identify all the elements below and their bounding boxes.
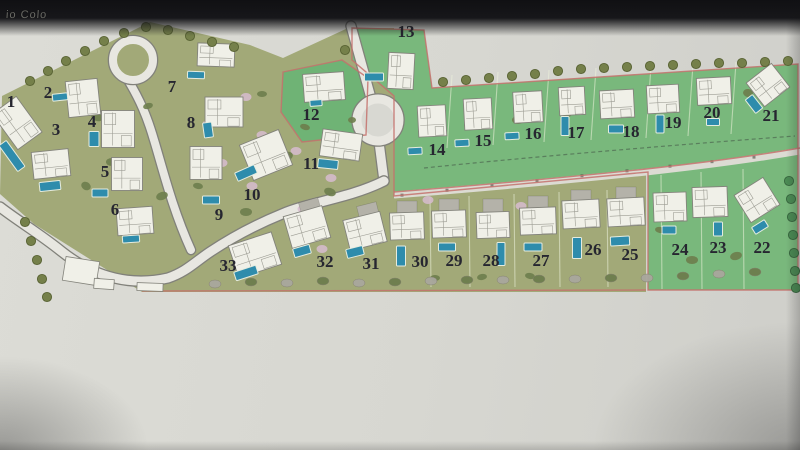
lot-number: 14	[429, 140, 447, 159]
tree-icon	[61, 56, 70, 65]
house-footprint	[558, 86, 585, 115]
swimming-pool	[439, 243, 456, 251]
swimming-pool	[187, 71, 204, 79]
house-footprint	[102, 111, 135, 148]
bush	[317, 277, 329, 285]
swimming-pool	[662, 226, 676, 234]
tree-icon	[789, 248, 798, 257]
rock	[497, 276, 509, 284]
tree-icon	[786, 194, 795, 203]
lot-4: 4	[88, 111, 135, 148]
lot-number: 21	[763, 106, 780, 125]
tree-icon	[229, 42, 238, 51]
house-footprint	[387, 52, 415, 89]
house-footprint	[696, 77, 731, 106]
road	[379, 142, 384, 181]
bush	[749, 268, 761, 276]
tree-icon	[163, 25, 172, 34]
tree-icon	[185, 31, 194, 40]
swimming-pool	[203, 122, 214, 138]
house-footprint	[116, 206, 154, 235]
lot-number: 31	[363, 254, 380, 273]
tree-icon	[207, 37, 216, 46]
site-plan-map: 1234567891011121314151617181920212223242…	[0, 0, 800, 450]
swimming-pool	[455, 139, 469, 147]
lot-number: 16	[525, 124, 542, 143]
bush	[348, 117, 356, 123]
lot-number: 4	[88, 112, 97, 131]
bush	[677, 272, 689, 280]
tree-icon	[42, 292, 51, 301]
bush	[257, 91, 267, 97]
house-outline	[463, 98, 493, 130]
tree-icon	[26, 236, 35, 245]
site-plan-photo: 1234567891011121314151617181920212223242…	[0, 0, 800, 450]
tree-icon	[99, 36, 108, 45]
lot-number: 27	[533, 251, 551, 270]
tree-icon	[37, 274, 46, 283]
house-outline	[692, 186, 728, 217]
rock	[209, 280, 221, 288]
turning-loop	[113, 40, 153, 80]
swimming-pool	[573, 238, 582, 259]
house-footprint	[432, 210, 467, 238]
house-outline	[513, 91, 544, 123]
swimming-pool	[397, 246, 406, 266]
tree-icon	[553, 66, 562, 75]
swimming-pool	[656, 115, 664, 133]
swimming-pool	[89, 132, 99, 147]
bush	[605, 274, 617, 282]
house-footprint	[31, 149, 71, 180]
rock	[281, 279, 293, 287]
house-footprint	[692, 186, 728, 217]
bush	[245, 278, 257, 286]
lot-number: 13	[398, 22, 415, 41]
lot-number: 15	[475, 131, 492, 150]
lot-number: 24	[672, 240, 690, 259]
flower-shrub	[326, 174, 337, 182]
tree-icon	[645, 61, 654, 70]
tree-icon	[787, 212, 796, 221]
lot-number: 9	[215, 205, 224, 224]
lot-number: 1	[7, 92, 16, 111]
swimming-pool	[365, 73, 384, 81]
lot-number: 2	[44, 83, 53, 102]
swimming-pool	[318, 158, 339, 169]
tree-icon	[737, 58, 746, 67]
house-outline	[190, 147, 222, 180]
house-footprint	[513, 91, 544, 123]
tree-icon	[760, 57, 769, 66]
house-footprint	[190, 147, 222, 180]
lot-number: 19	[665, 113, 682, 132]
outbuilding	[137, 283, 163, 292]
tree-icon	[484, 73, 493, 82]
lot-number: 33	[220, 256, 237, 275]
house-footprint	[653, 192, 687, 222]
estate-bottom-boundary	[142, 290, 646, 291]
house-footprint	[417, 105, 447, 137]
tree-icon	[32, 255, 41, 264]
outbuilding	[94, 278, 115, 289]
tree-icon	[691, 59, 700, 68]
house-footprint	[520, 207, 557, 235]
lot-number: 10	[244, 185, 261, 204]
lot-number: 29	[446, 251, 463, 270]
bush	[389, 278, 401, 286]
lot-number: 6	[111, 200, 120, 219]
lot-number: 22	[754, 238, 771, 257]
house-footprint	[476, 211, 510, 238]
house-footprint	[319, 129, 362, 161]
rock	[641, 274, 653, 282]
house-outline	[31, 149, 71, 180]
tree-icon	[530, 69, 539, 78]
house-outline	[303, 72, 346, 103]
driveway	[483, 199, 503, 212]
bush	[240, 208, 252, 216]
rock	[353, 279, 365, 287]
tree-icon	[783, 56, 792, 65]
lot-number: 18	[623, 122, 640, 141]
tree-icon	[791, 283, 800, 292]
swimming-pool	[505, 132, 519, 140]
house-footprint	[112, 158, 143, 191]
lot-number: 26	[585, 240, 602, 259]
house-footprint	[303, 72, 346, 103]
house-footprint	[599, 89, 634, 119]
house-outline	[417, 105, 447, 137]
plan-title-fragment: io Colo	[6, 9, 48, 21]
house-footprint	[607, 197, 645, 227]
tree-icon	[576, 64, 585, 73]
tree-icon	[714, 58, 723, 67]
lot-number: 5	[101, 162, 110, 181]
house-outline	[102, 111, 135, 148]
tree-icon	[80, 46, 89, 55]
house-footprint	[463, 98, 493, 130]
tree-icon	[599, 63, 608, 72]
lot-number: 12	[303, 105, 320, 124]
lot-number: 32	[317, 252, 334, 271]
tree-icon	[438, 77, 447, 86]
rock	[425, 277, 437, 285]
rock	[713, 270, 725, 278]
lot-number: 11	[303, 154, 319, 173]
tree-icon	[668, 60, 677, 69]
swimming-pool	[609, 125, 624, 133]
swimming-pool	[92, 189, 108, 197]
tree-icon	[784, 176, 793, 185]
tree-icon	[141, 22, 150, 31]
tree-icon	[788, 230, 797, 239]
lot-number: 23	[710, 238, 727, 257]
tree-icon	[119, 28, 128, 37]
rock	[569, 275, 581, 283]
house-outline	[319, 129, 362, 161]
tree-icon	[790, 266, 799, 275]
house-footprint	[390, 212, 425, 240]
lot-number: 28	[483, 251, 500, 270]
lot-number: 3	[52, 120, 61, 139]
swimming-pool	[52, 93, 68, 102]
lot-number: 17	[568, 123, 586, 142]
house-footprint	[562, 199, 600, 229]
bush	[461, 276, 473, 284]
house-footprint	[646, 84, 679, 114]
swimming-pool	[714, 222, 723, 236]
lot-number: 20	[704, 103, 721, 122]
tree-icon	[20, 217, 29, 226]
house-outline	[653, 192, 687, 222]
swimming-pool	[408, 147, 422, 155]
flower-shrub	[423, 196, 434, 204]
bush	[533, 275, 545, 283]
lot-number: 7	[168, 77, 177, 96]
swimming-pool	[203, 196, 220, 204]
lot-number: 8	[187, 113, 196, 132]
swimming-pool	[39, 180, 61, 191]
house-outline	[112, 158, 143, 191]
lot-number: 25	[622, 245, 639, 264]
tree-icon	[461, 75, 470, 84]
swimming-pool	[524, 243, 542, 251]
house-outline	[116, 206, 154, 235]
tree-icon	[507, 71, 516, 80]
tree-icon	[622, 62, 631, 71]
tree-icon	[340, 45, 349, 54]
lot-17: 17	[558, 86, 585, 142]
tree-icon	[43, 66, 52, 75]
swimming-pool	[122, 235, 139, 243]
lot-number: 30	[412, 252, 429, 271]
tree-icon	[25, 76, 34, 85]
